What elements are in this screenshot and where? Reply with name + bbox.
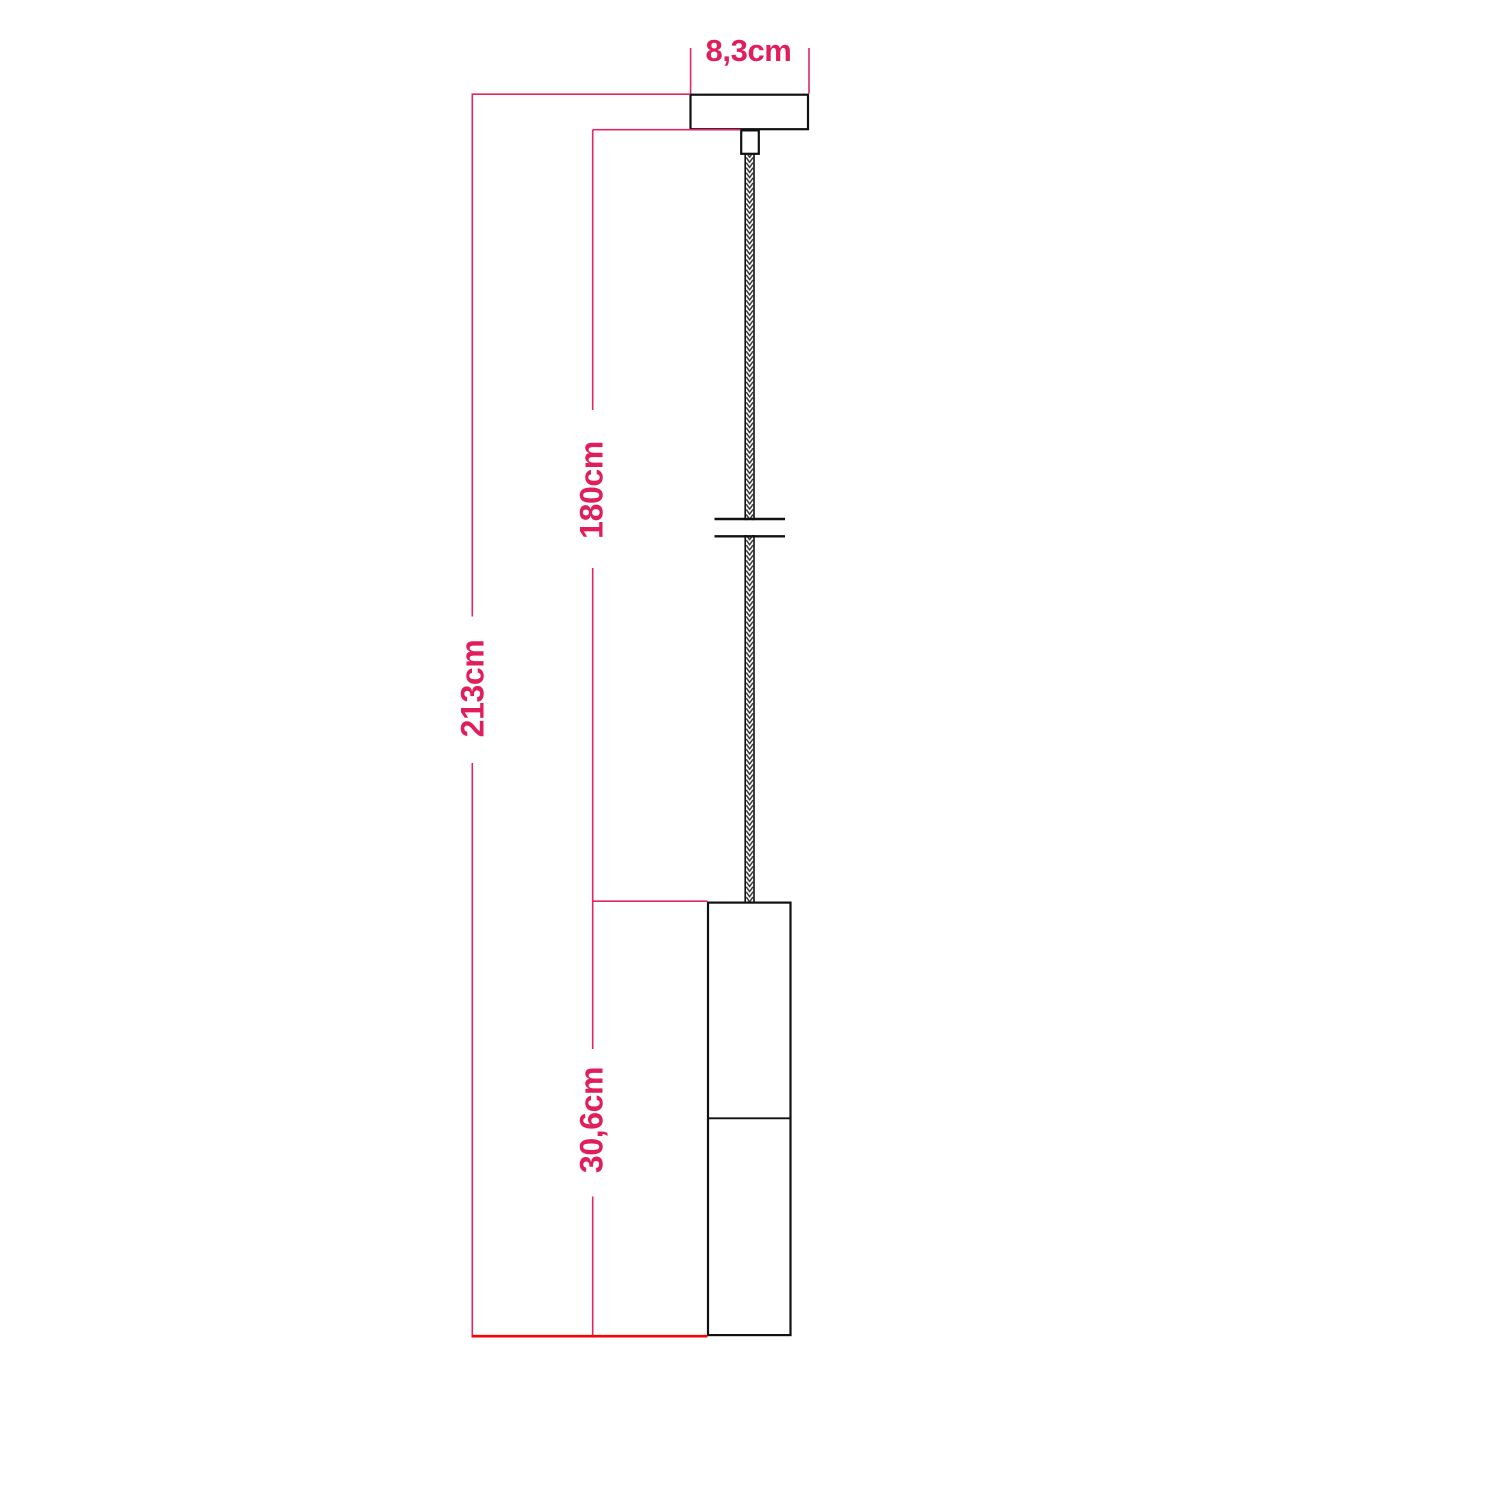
svg-text:213cm: 213cm xyxy=(455,640,491,738)
svg-text:180cm: 180cm xyxy=(574,441,610,539)
svg-text:8,3cm: 8,3cm xyxy=(706,33,792,68)
svg-text:30,6cm: 30,6cm xyxy=(574,1067,610,1173)
